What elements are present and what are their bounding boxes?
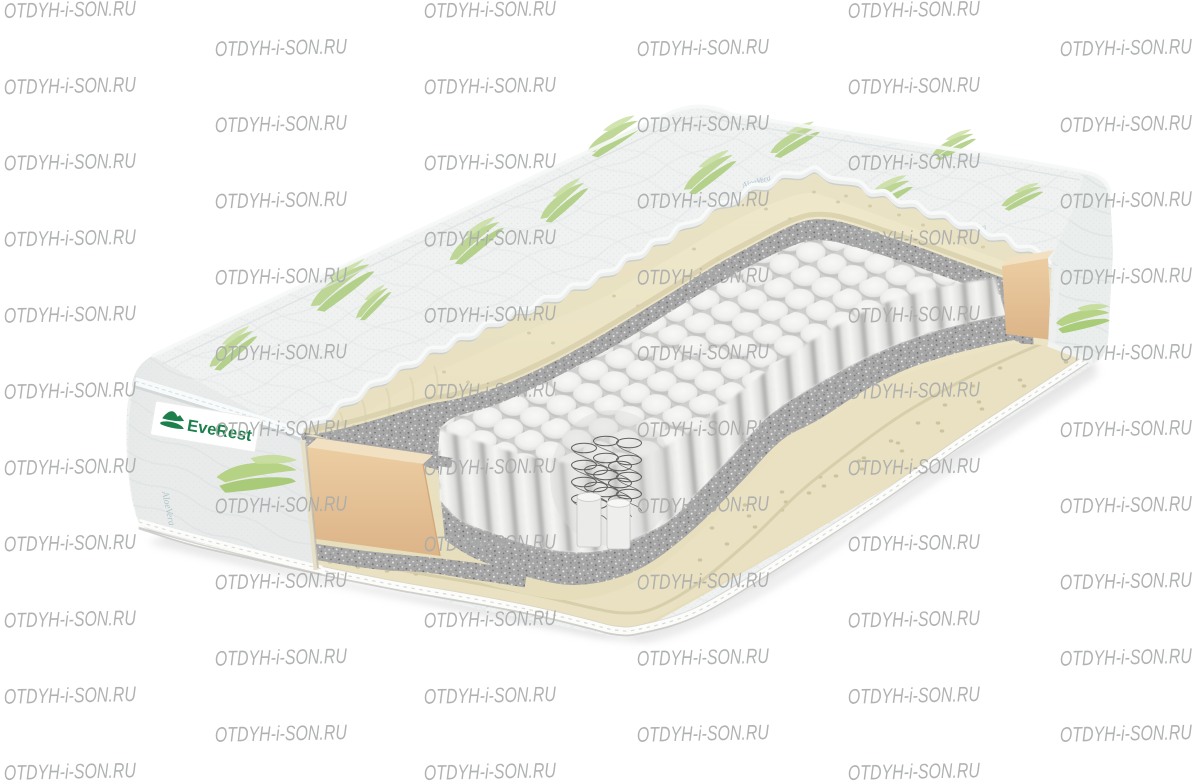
svg-text:OTDYH-i-SON.RU: OTDYH-i-SON.RU bbox=[215, 493, 348, 519]
svg-text:OTDYH-i-SON.RU: OTDYH-i-SON.RU bbox=[4, 150, 137, 176]
svg-text:OTDYH-i-SON.RU: OTDYH-i-SON.RU bbox=[4, 454, 137, 480]
svg-text:OTDYH-i-SON.RU: OTDYH-i-SON.RU bbox=[215, 340, 348, 366]
svg-text:OTDYH-i-SON.RU: OTDYH-i-SON.RU bbox=[1060, 569, 1193, 595]
svg-text:OTDYH-i-SON.RU: OTDYH-i-SON.RU bbox=[4, 531, 137, 557]
svg-text:OTDYH-i-SON.RU: OTDYH-i-SON.RU bbox=[424, 531, 557, 557]
svg-text:OTDYH-i-SON.RU: OTDYH-i-SON.RU bbox=[424, 378, 557, 404]
svg-text:OTDYH-i-SON.RU: OTDYH-i-SON.RU bbox=[848, 759, 981, 783]
svg-text:OTDYH-i-SON.RU: OTDYH-i-SON.RU bbox=[424, 759, 557, 783]
svg-text:OTDYH-i-SON.RU: OTDYH-i-SON.RU bbox=[4, 0, 137, 23]
svg-text:OTDYH-i-SON.RU: OTDYH-i-SON.RU bbox=[4, 759, 137, 783]
svg-text:OTDYH-i-SON.RU: OTDYH-i-SON.RU bbox=[4, 683, 137, 709]
svg-text:OTDYH-i-SON.RU: OTDYH-i-SON.RU bbox=[637, 721, 770, 747]
svg-text:OTDYH-i-SON.RU: OTDYH-i-SON.RU bbox=[424, 150, 557, 176]
svg-text:OTDYH-i-SON.RU: OTDYH-i-SON.RU bbox=[848, 454, 981, 480]
svg-text:OTDYH-i-SON.RU: OTDYH-i-SON.RU bbox=[848, 0, 981, 23]
svg-text:OTDYH-i-SON.RU: OTDYH-i-SON.RU bbox=[424, 226, 557, 252]
svg-text:OTDYH-i-SON.RU: OTDYH-i-SON.RU bbox=[424, 607, 557, 633]
svg-text:OTDYH-i-SON.RU: OTDYH-i-SON.RU bbox=[424, 302, 557, 328]
svg-text:OTDYH-i-SON.RU: OTDYH-i-SON.RU bbox=[637, 493, 770, 519]
svg-text:OTDYH-i-SON.RU: OTDYH-i-SON.RU bbox=[215, 416, 348, 442]
svg-text:OTDYH-i-SON.RU: OTDYH-i-SON.RU bbox=[215, 188, 348, 214]
svg-text:OTDYH-i-SON.RU: OTDYH-i-SON.RU bbox=[1060, 645, 1193, 671]
svg-text:OTDYH-i-SON.RU: OTDYH-i-SON.RU bbox=[637, 340, 770, 366]
svg-text:OTDYH-i-SON.RU: OTDYH-i-SON.RU bbox=[4, 378, 137, 404]
svg-text:OTDYH-i-SON.RU: OTDYH-i-SON.RU bbox=[424, 683, 557, 709]
svg-text:OTDYH-i-SON.RU: OTDYH-i-SON.RU bbox=[1060, 264, 1193, 290]
svg-text:OTDYH-i-SON.RU: OTDYH-i-SON.RU bbox=[4, 302, 137, 328]
svg-text:OTDYH-i-SON.RU: OTDYH-i-SON.RU bbox=[1060, 721, 1193, 747]
svg-text:OTDYH-i-SON.RU: OTDYH-i-SON.RU bbox=[848, 607, 981, 633]
svg-text:OTDYH-i-SON.RU: OTDYH-i-SON.RU bbox=[215, 721, 348, 747]
svg-text:OTDYH-i-SON.RU: OTDYH-i-SON.RU bbox=[1060, 35, 1193, 61]
svg-text:OTDYH-i-SON.RU: OTDYH-i-SON.RU bbox=[215, 645, 348, 671]
svg-text:OTDYH-i-SON.RU: OTDYH-i-SON.RU bbox=[215, 112, 348, 138]
svg-text:OTDYH-i-SON.RU: OTDYH-i-SON.RU bbox=[848, 73, 981, 99]
svg-text:OTDYH-i-SON.RU: OTDYH-i-SON.RU bbox=[1060, 112, 1193, 138]
svg-text:OTDYH-i-SON.RU: OTDYH-i-SON.RU bbox=[637, 112, 770, 138]
svg-text:OTDYH-i-SON.RU: OTDYH-i-SON.RU bbox=[637, 569, 770, 595]
svg-text:OTDYH-i-SON.RU: OTDYH-i-SON.RU bbox=[848, 531, 981, 557]
svg-text:OTDYH-i-SON.RU: OTDYH-i-SON.RU bbox=[637, 35, 770, 61]
svg-text:OTDYH-i-SON.RU: OTDYH-i-SON.RU bbox=[1060, 188, 1193, 214]
svg-text:OTDYH-i-SON.RU: OTDYH-i-SON.RU bbox=[1060, 493, 1193, 519]
svg-text:OTDYH-i-SON.RU: OTDYH-i-SON.RU bbox=[1060, 340, 1193, 366]
svg-text:OTDYH-i-SON.RU: OTDYH-i-SON.RU bbox=[4, 226, 137, 252]
svg-text:OTDYH-i-SON.RU: OTDYH-i-SON.RU bbox=[637, 264, 770, 290]
svg-text:OTDYH-i-SON.RU: OTDYH-i-SON.RU bbox=[848, 226, 981, 252]
svg-text:OTDYH-i-SON.RU: OTDYH-i-SON.RU bbox=[4, 73, 137, 99]
svg-text:OTDYH-i-SON.RU: OTDYH-i-SON.RU bbox=[215, 569, 348, 595]
svg-text:OTDYH-i-SON.RU: OTDYH-i-SON.RU bbox=[637, 645, 770, 671]
svg-text:OTDYH-i-SON.RU: OTDYH-i-SON.RU bbox=[848, 683, 981, 709]
svg-text:OTDYH-i-SON.RU: OTDYH-i-SON.RU bbox=[848, 150, 981, 176]
svg-text:OTDYH-i-SON.RU: OTDYH-i-SON.RU bbox=[1060, 416, 1193, 442]
svg-text:OTDYH-i-SON.RU: OTDYH-i-SON.RU bbox=[637, 188, 770, 214]
svg-text:OTDYH-i-SON.RU: OTDYH-i-SON.RU bbox=[215, 264, 348, 290]
svg-text:OTDYH-i-SON.RU: OTDYH-i-SON.RU bbox=[637, 416, 770, 442]
svg-text:OTDYH-i-SON.RU: OTDYH-i-SON.RU bbox=[4, 607, 137, 633]
svg-text:OTDYH-i-SON.RU: OTDYH-i-SON.RU bbox=[424, 0, 557, 23]
svg-text:OTDYH-i-SON.RU: OTDYH-i-SON.RU bbox=[848, 302, 981, 328]
svg-text:OTDYH-i-SON.RU: OTDYH-i-SON.RU bbox=[215, 35, 348, 61]
svg-text:OTDYH-i-SON.RU: OTDYH-i-SON.RU bbox=[424, 73, 557, 99]
svg-text:OTDYH-i-SON.RU: OTDYH-i-SON.RU bbox=[424, 454, 557, 480]
svg-text:OTDYH-i-SON.RU: OTDYH-i-SON.RU bbox=[848, 378, 981, 404]
